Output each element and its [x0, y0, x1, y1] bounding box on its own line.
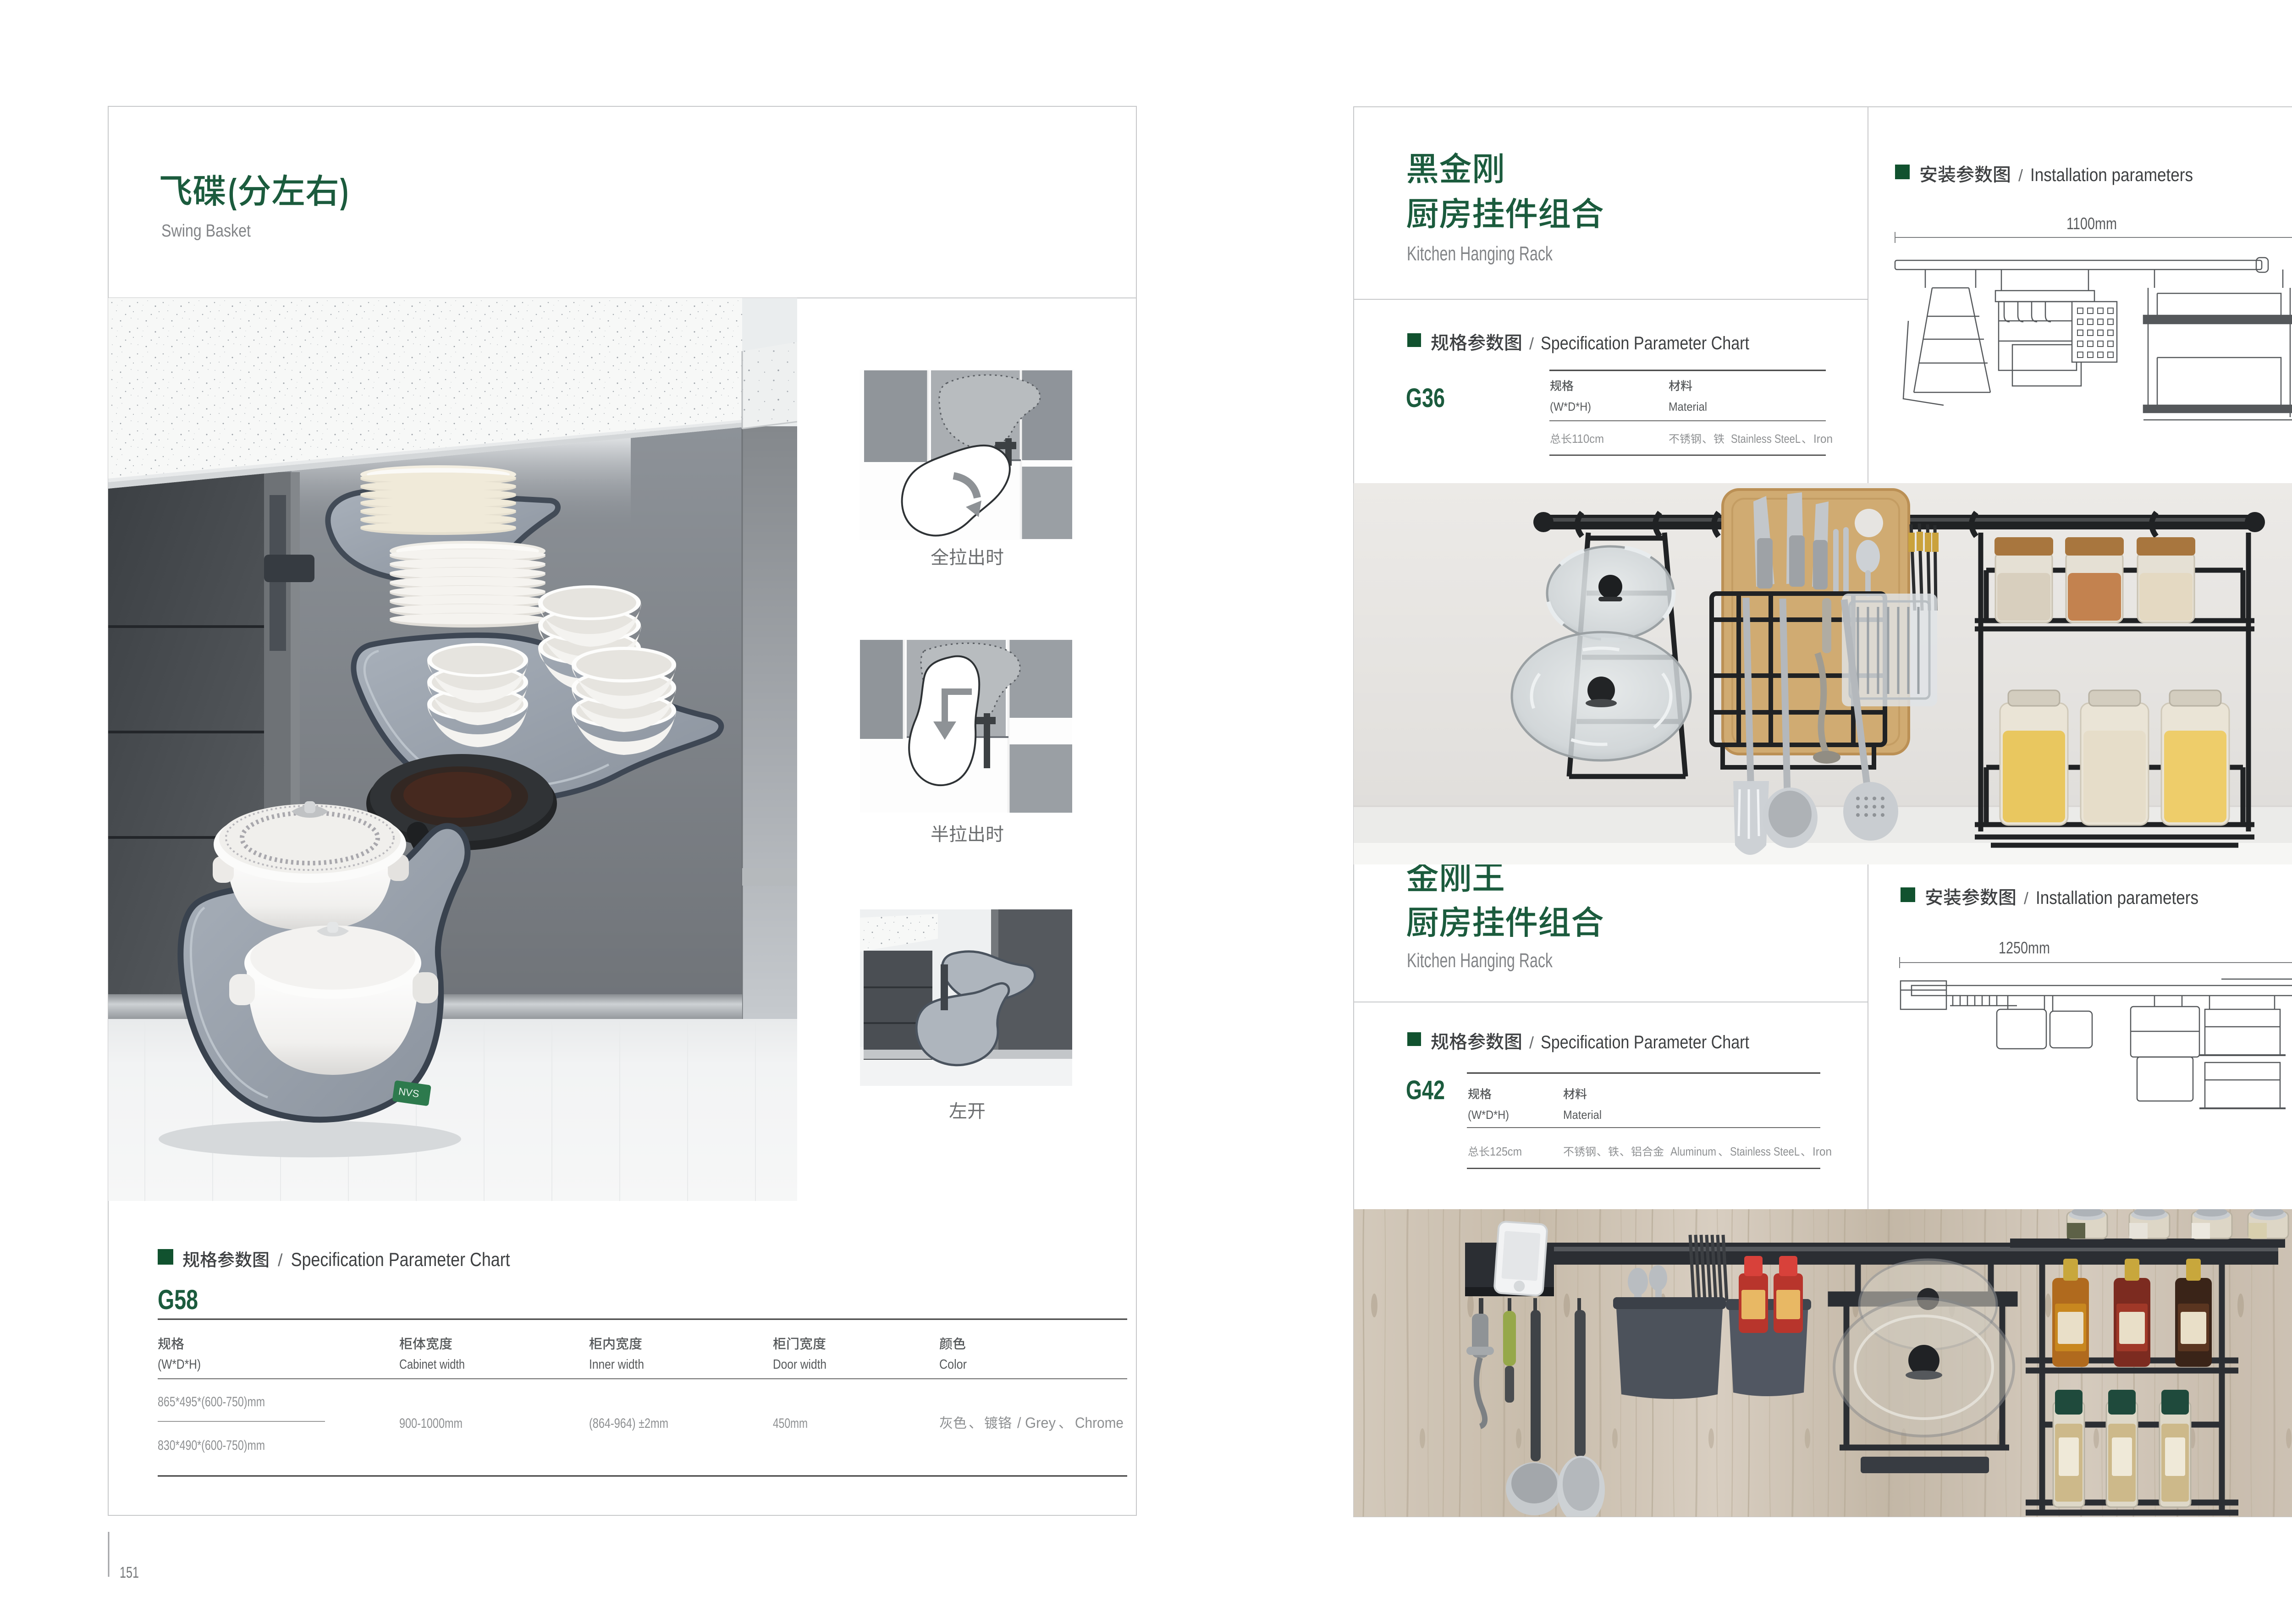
svg-text:G58: G58: [158, 1284, 198, 1315]
svg-text:Material: Material: [1669, 400, 1707, 413]
svg-text:Swing Basket: Swing Basket: [161, 221, 251, 241]
svg-text:865*495*(600-750)mm: 865*495*(600-750)mm: [158, 1394, 265, 1409]
svg-text:Installation parameters: Installation parameters: [2036, 888, 2198, 908]
svg-text:G42: G42: [1406, 1075, 1445, 1105]
svg-text:1250mm: 1250mm: [1999, 938, 2050, 957]
svg-text:151: 151: [120, 1564, 139, 1581]
svg-text:1100mm: 1100mm: [2066, 214, 2117, 233]
svg-text:(W*D*H): (W*D*H): [1468, 1108, 1509, 1122]
svg-text:(W*D*H): (W*D*H): [158, 1357, 201, 1372]
svg-text:125cm: 125cm: [1490, 1145, 1522, 1158]
svg-text:Iron: Iron: [1813, 1145, 1832, 1158]
svg-text:Aluminum: Aluminum: [1670, 1145, 1716, 1158]
svg-text:830*490*(600-750)mm: 830*490*(600-750)mm: [158, 1438, 265, 1453]
svg-text:(: (: [228, 172, 237, 211]
svg-text:/: /: [2024, 889, 2028, 908]
svg-text:/: /: [2018, 166, 2023, 185]
svg-text:(864-964) ±2mm: (864-964) ±2mm: [589, 1416, 668, 1431]
svg-text:Cabinet width: Cabinet width: [399, 1357, 465, 1372]
svg-text:G36: G36: [1406, 383, 1445, 413]
svg-text:Specification Parameter Chart: Specification Parameter Chart: [291, 1249, 510, 1270]
svg-text:/: /: [278, 1251, 283, 1270]
svg-text:(W*D*H): (W*D*H): [1550, 400, 1591, 413]
svg-text:Specification Parameter Chart: Specification Parameter Chart: [1541, 333, 1749, 353]
svg-text:/: /: [1529, 334, 1534, 353]
svg-text:900-1000mm: 900-1000mm: [399, 1416, 463, 1431]
svg-text:Stainless SteeL: Stainless SteeL: [1731, 432, 1801, 446]
svg-text:110cm: 110cm: [1572, 432, 1604, 446]
svg-text:Kitchen Hanging Rack: Kitchen Hanging Rack: [1407, 242, 1553, 265]
svg-text:Installation parameters: Installation parameters: [2030, 165, 2193, 185]
svg-text:Kitchen Hanging Rack: Kitchen Hanging Rack: [1407, 949, 1553, 972]
svg-text:Chrome: Chrome: [1075, 1415, 1124, 1431]
svg-text:Color: Color: [939, 1357, 967, 1372]
svg-text:/ Grey: / Grey: [1017, 1415, 1056, 1431]
svg-text:Iron: Iron: [1813, 432, 1833, 446]
svg-text:Door width: Door width: [773, 1357, 826, 1372]
svg-text:/: /: [1529, 1033, 1534, 1052]
svg-text:Inner width: Inner width: [589, 1357, 644, 1372]
svg-text:Stainless SteeL: Stainless SteeL: [1730, 1145, 1800, 1158]
svg-text:Specification Parameter Chart: Specification Parameter Chart: [1541, 1032, 1749, 1052]
svg-text:450mm: 450mm: [773, 1416, 808, 1431]
svg-text:): ): [340, 172, 348, 211]
svg-text:Material: Material: [1563, 1108, 1602, 1122]
